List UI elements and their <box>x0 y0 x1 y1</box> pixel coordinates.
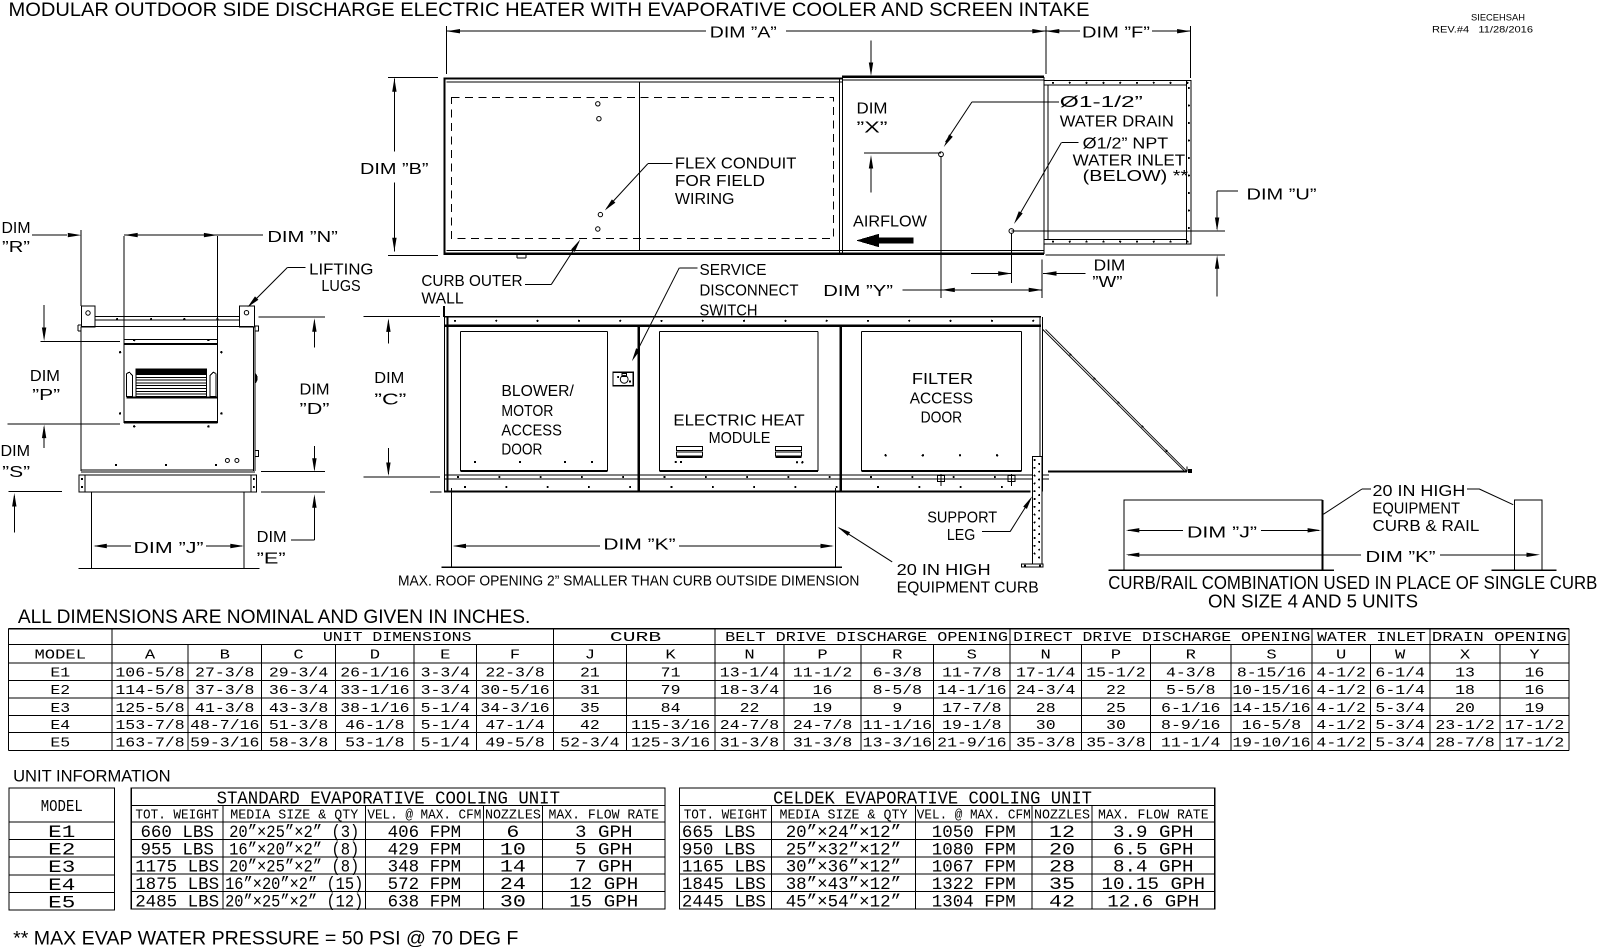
svg-text:FLEX CONDUIT: FLEX CONDUIT <box>675 156 797 173</box>
svg-text:41-3/8: 41-3/8 <box>195 701 254 717</box>
svg-text:20”×25”×2” (12): 20”×25”×2” (12) <box>225 893 363 913</box>
svg-text:13-3/16: 13-3/16 <box>863 735 932 751</box>
svg-text:16: 16 <box>1525 666 1545 682</box>
svg-text:DIM: DIM <box>1094 258 1126 275</box>
svg-text:5-3/4: 5-3/4 <box>1375 718 1425 734</box>
svg-text:18-3/4: 18-3/4 <box>720 683 779 699</box>
svg-text:35: 35 <box>580 701 600 717</box>
svg-text:19-10/16: 19-10/16 <box>1233 735 1311 751</box>
svg-text:E3: E3 <box>50 701 70 717</box>
svg-text:28-7/8: 28-7/8 <box>1435 735 1494 751</box>
svg-text:S: S <box>1266 648 1276 664</box>
svg-text:19: 19 <box>813 701 833 717</box>
svg-text:24-3/4: 24-3/4 <box>1016 683 1075 699</box>
svg-text:6-1/16: 6-1/16 <box>1161 701 1220 717</box>
svg-text:P: P <box>817 648 827 664</box>
svg-text:6-1/4: 6-1/4 <box>1375 683 1425 699</box>
svg-text:31-3/8: 31-3/8 <box>793 735 852 751</box>
svg-text:9: 9 <box>892 701 902 717</box>
svg-text:DIM ”J”: DIM ”J” <box>134 540 204 557</box>
svg-text:DIM: DIM <box>257 529 287 546</box>
svg-text:”X”: ”X” <box>857 120 888 137</box>
svg-text:Y: Y <box>1529 648 1540 664</box>
svg-text:22: 22 <box>740 701 760 717</box>
svg-text:30-5/16: 30-5/16 <box>480 683 549 699</box>
svg-text:DIM ”B”: DIM ”B” <box>360 161 429 178</box>
svg-text:52-3/4: 52-3/4 <box>560 735 619 751</box>
svg-text:2445 LBS: 2445 LBS <box>682 893 766 913</box>
svg-text:DIM: DIM <box>30 368 60 385</box>
svg-text:31-3/8: 31-3/8 <box>720 735 779 751</box>
svg-text:21: 21 <box>580 666 600 682</box>
svg-text:MODULAR OUTDOOR SIDE DISCHARGE: MODULAR OUTDOOR SIDE DISCHARGE ELECTRIC … <box>9 0 1090 21</box>
svg-text:35-3/8: 35-3/8 <box>1016 735 1075 751</box>
svg-text:12.6 GPH: 12.6 GPH <box>1107 893 1199 913</box>
svg-text:BLOWER/: BLOWER/ <box>501 383 574 400</box>
svg-text:53-1/8: 53-1/8 <box>345 735 404 751</box>
svg-text:** MAX EVAP WATER PRESSURE = 5: ** MAX EVAP WATER PRESSURE = 50 PSI @ 70… <box>13 929 518 947</box>
svg-text:31: 31 <box>580 683 600 699</box>
svg-text:DISCONNECT: DISCONNECT <box>700 282 800 299</box>
svg-text:DIM: DIM <box>857 101 888 118</box>
svg-text:R: R <box>892 648 903 664</box>
svg-text:DIM ”J”: DIM ”J” <box>1187 524 1257 541</box>
svg-text:TOT. WEIGHT: TOT. WEIGHT <box>135 808 219 824</box>
svg-text:163-7/8: 163-7/8 <box>115 735 184 751</box>
svg-text:VEL. @ MAX. CFM: VEL. @ MAX. CFM <box>917 808 1031 824</box>
svg-text:37-3/8: 37-3/8 <box>195 683 254 699</box>
svg-text:36-3/4: 36-3/4 <box>269 683 328 699</box>
svg-text:”C”: ”C” <box>374 392 406 409</box>
svg-text:22-3/8: 22-3/8 <box>485 666 544 682</box>
svg-text:U: U <box>1336 648 1346 664</box>
svg-text:NOZZLES: NOZZLES <box>485 808 541 824</box>
svg-text:MEDIA SIZE & QTY: MEDIA SIZE & QTY <box>779 808 908 824</box>
svg-text:S: S <box>967 648 977 664</box>
svg-text:24-7/8: 24-7/8 <box>720 718 779 734</box>
svg-text:FOR FIELD: FOR FIELD <box>675 173 765 190</box>
svg-text:49-5/8: 49-5/8 <box>485 735 544 751</box>
svg-text:30: 30 <box>1036 718 1056 734</box>
svg-text:17-7/8: 17-7/8 <box>942 701 1001 717</box>
svg-text:19: 19 <box>1525 701 1545 717</box>
svg-text:34-3/16: 34-3/16 <box>480 701 549 717</box>
svg-text:14-15/16: 14-15/16 <box>1233 701 1311 717</box>
svg-text:13-1/4: 13-1/4 <box>720 666 779 682</box>
svg-text:3-3/4: 3-3/4 <box>421 666 471 682</box>
svg-text:11-1/4: 11-1/4 <box>1161 735 1220 751</box>
svg-text:3-3/4: 3-3/4 <box>421 683 471 699</box>
svg-text:TOT. WEIGHT: TOT. WEIGHT <box>684 808 768 824</box>
svg-text:8-9/16: 8-9/16 <box>1161 718 1220 734</box>
svg-text:11-1/2: 11-1/2 <box>793 666 852 682</box>
svg-text:SUPPORT: SUPPORT <box>927 510 997 527</box>
svg-text:E: E <box>440 648 450 664</box>
svg-text:51-3/8: 51-3/8 <box>269 718 328 734</box>
svg-text:MOTOR: MOTOR <box>501 403 553 420</box>
svg-text:DIM: DIM <box>374 370 404 387</box>
svg-text:8-5/8: 8-5/8 <box>873 683 923 699</box>
svg-text:16: 16 <box>813 683 833 699</box>
svg-text:30: 30 <box>1106 718 1126 734</box>
svg-text:”W”: ”W” <box>1092 274 1122 291</box>
svg-text:48-7/16: 48-7/16 <box>190 718 259 734</box>
svg-text:23-1/2: 23-1/2 <box>1435 718 1494 734</box>
svg-text:UNIT DIMENSIONS: UNIT DIMENSIONS <box>323 630 472 646</box>
svg-text:CURB: CURB <box>610 630 661 646</box>
svg-text:E5: E5 <box>48 893 75 913</box>
svg-text:W: W <box>1395 648 1406 664</box>
svg-text:WATER DRAIN: WATER DRAIN <box>1060 114 1174 131</box>
svg-text:115-3/16: 115-3/16 <box>631 718 710 734</box>
svg-text:30: 30 <box>500 893 526 913</box>
svg-text:EQUIPMENT CURB: EQUIPMENT CURB <box>897 580 1039 597</box>
svg-text:DIM ”U”: DIM ”U” <box>1247 187 1317 204</box>
svg-text:J: J <box>585 648 595 664</box>
svg-text:”P”: ”P” <box>32 387 60 404</box>
svg-text:F: F <box>510 648 520 664</box>
svg-text:REV.#4 11/28/2016: REV.#4 11/28/2016 <box>1432 24 1533 35</box>
svg-text:4-1/2: 4-1/2 <box>1316 701 1366 717</box>
svg-text:5-1/4: 5-1/4 <box>421 718 471 734</box>
svg-text:N: N <box>744 648 754 664</box>
svg-text:106-5/8: 106-5/8 <box>115 666 184 682</box>
svg-text:WIRING: WIRING <box>675 191 735 208</box>
svg-text:D: D <box>370 648 380 664</box>
svg-text:FILTER: FILTER <box>912 371 973 388</box>
svg-text:ELECTRIC HEAT: ELECTRIC HEAT <box>673 413 805 430</box>
svg-text:Ø1-1/2”: Ø1-1/2” <box>1060 94 1143 111</box>
svg-text:MAX. FLOW RATE: MAX. FLOW RATE <box>1098 808 1209 824</box>
svg-text:25: 25 <box>1106 701 1126 717</box>
svg-text:SERVICE: SERVICE <box>700 262 767 279</box>
svg-text:DOOR: DOOR <box>921 410 963 427</box>
svg-text:5-1/4: 5-1/4 <box>421 735 471 751</box>
svg-text:4-1/2: 4-1/2 <box>1316 666 1366 682</box>
svg-text:EQUIPMENT: EQUIPMENT <box>1373 501 1461 518</box>
svg-text:8-15/16: 8-15/16 <box>1237 666 1306 682</box>
svg-text:VEL. @ MAX. CFM: VEL. @ MAX. CFM <box>367 808 481 824</box>
svg-text:LIFTING: LIFTING <box>309 262 373 279</box>
svg-text:A: A <box>145 648 156 664</box>
svg-text:LUGS: LUGS <box>321 278 360 295</box>
svg-text:26-1/16: 26-1/16 <box>340 666 409 682</box>
svg-text:1304 FPM: 1304 FPM <box>932 893 1016 913</box>
svg-text:4-1/2: 4-1/2 <box>1316 718 1366 734</box>
svg-text:35-3/8: 35-3/8 <box>1086 735 1145 751</box>
svg-text:DIM ”F”: DIM ”F” <box>1082 24 1150 41</box>
svg-text:DIM: DIM <box>300 382 330 399</box>
svg-text:27-3/8: 27-3/8 <box>195 666 254 682</box>
svg-text:6-1/4: 6-1/4 <box>1375 666 1425 682</box>
svg-text:79: 79 <box>661 683 681 699</box>
svg-text:638 FPM: 638 FPM <box>388 893 462 913</box>
svg-text:125-5/8: 125-5/8 <box>115 701 184 717</box>
svg-text:MEDIA SIZE & QTY: MEDIA SIZE & QTY <box>230 808 359 824</box>
svg-text:BELT DRIVE DISCHARGE OPENING: BELT DRIVE DISCHARGE OPENING <box>725 630 1008 646</box>
svg-text:DIRECT DRIVE DISCHARGE OPENING: DIRECT DRIVE DISCHARGE OPENING <box>1013 630 1310 646</box>
svg-text:DIM ”K”: DIM ”K” <box>603 537 675 554</box>
svg-text:47-1/4: 47-1/4 <box>485 718 544 734</box>
svg-text:WATER INLET: WATER INLET <box>1073 152 1186 169</box>
svg-text:58-3/8: 58-3/8 <box>269 735 328 751</box>
svg-text:42: 42 <box>580 718 600 734</box>
svg-text:E4: E4 <box>50 718 70 734</box>
svg-text:43-3/8: 43-3/8 <box>269 701 328 717</box>
svg-text:17-1/2: 17-1/2 <box>1505 735 1564 751</box>
svg-text:42: 42 <box>1049 893 1075 913</box>
svg-text:MODEL: MODEL <box>35 648 87 664</box>
svg-text:C: C <box>293 648 303 664</box>
svg-text:20 IN HIGH: 20 IN HIGH <box>1373 483 1466 500</box>
svg-text:CURB & RAIL: CURB & RAIL <box>1373 518 1480 535</box>
svg-text:84: 84 <box>661 701 681 717</box>
svg-text:45”×54”×12”: 45”×54”×12” <box>786 893 902 913</box>
svg-text:24-7/8: 24-7/8 <box>793 718 852 734</box>
svg-text:2485 LBS: 2485 LBS <box>135 893 219 913</box>
svg-text:MAX. FLOW RATE: MAX. FLOW RATE <box>548 808 659 824</box>
svg-text:CURB OUTER: CURB OUTER <box>421 273 522 290</box>
svg-text:153-7/8: 153-7/8 <box>115 718 184 734</box>
svg-text:10-15/16: 10-15/16 <box>1233 683 1311 699</box>
svg-text:5-5/8: 5-5/8 <box>1166 683 1216 699</box>
svg-text:LEG: LEG <box>947 527 975 544</box>
svg-text:P: P <box>1111 648 1121 664</box>
svg-text:ON SIZE 4 AND 5 UNITS: ON SIZE 4 AND 5 UNITS <box>1208 590 1418 611</box>
svg-text:114-5/8: 114-5/8 <box>115 683 184 699</box>
svg-text:DIM ”K”: DIM ”K” <box>1366 549 1436 566</box>
svg-text:DRAIN OPENING: DRAIN OPENING <box>1432 630 1567 646</box>
svg-text:N: N <box>1041 648 1051 664</box>
svg-text:SWITCH: SWITCH <box>700 303 758 320</box>
svg-text:E1: E1 <box>50 666 70 682</box>
svg-text:K: K <box>665 648 676 664</box>
svg-text:AIRFLOW: AIRFLOW <box>853 214 927 231</box>
svg-text:DIM: DIM <box>2 220 31 237</box>
svg-text:18: 18 <box>1455 683 1475 699</box>
svg-text:DIM ”Y”: DIM ”Y” <box>823 283 893 300</box>
svg-text:NOZZLES: NOZZLES <box>1034 808 1090 824</box>
svg-text:(BELOW) **: (BELOW) ** <box>1083 168 1188 185</box>
svg-text:X: X <box>1460 648 1471 664</box>
svg-text:CELDEK EVAPORATIVE COOLING UNI: CELDEK EVAPORATIVE COOLING UNIT <box>773 789 1092 809</box>
svg-text:STANDARD EVAPORATIVE COOLING U: STANDARD EVAPORATIVE COOLING UNIT <box>217 789 561 809</box>
svg-text:MODULE: MODULE <box>709 430 771 447</box>
svg-text:59-3/16: 59-3/16 <box>190 735 259 751</box>
svg-text:4-3/8: 4-3/8 <box>1166 666 1216 682</box>
svg-text:”E”: ”E” <box>257 551 286 568</box>
svg-text:11-7/8: 11-7/8 <box>942 666 1001 682</box>
svg-text:”R”: ”R” <box>2 239 30 256</box>
svg-text:MODEL: MODEL <box>41 798 83 817</box>
svg-text:20 IN HIGH: 20 IN HIGH <box>897 562 991 579</box>
svg-text:ACCESS: ACCESS <box>501 422 562 439</box>
svg-text:DIM ”A”: DIM ”A” <box>710 24 777 41</box>
svg-text:E5: E5 <box>50 735 70 751</box>
svg-text:Ø1/2” NPT: Ø1/2” NPT <box>1083 135 1169 152</box>
svg-text:WATER INLET: WATER INLET <box>1317 630 1426 646</box>
svg-text:33-1/16: 33-1/16 <box>340 683 409 699</box>
svg-text:SIECEHSAH: SIECEHSAH <box>1471 12 1525 23</box>
svg-text:13: 13 <box>1455 666 1475 682</box>
svg-text:29-3/4: 29-3/4 <box>269 666 328 682</box>
svg-text:5-3/4: 5-3/4 <box>1375 735 1425 751</box>
svg-text:DIM: DIM <box>1 443 30 460</box>
svg-text:17-1/2: 17-1/2 <box>1505 718 1564 734</box>
svg-text:E2: E2 <box>50 683 70 699</box>
svg-text:19-1/8: 19-1/8 <box>942 718 1001 734</box>
svg-text:ACCESS: ACCESS <box>910 391 973 408</box>
svg-text:11-1/16: 11-1/16 <box>863 718 932 734</box>
svg-text:16-5/8: 16-5/8 <box>1242 718 1301 734</box>
svg-text:”D”: ”D” <box>300 401 330 418</box>
svg-text:DIM ”N”: DIM ”N” <box>267 229 338 246</box>
svg-text:17-1/4: 17-1/4 <box>1016 666 1075 682</box>
svg-text:28: 28 <box>1036 701 1056 717</box>
svg-text:71: 71 <box>661 666 681 682</box>
svg-text:15-1/2: 15-1/2 <box>1086 666 1145 682</box>
svg-text:15 GPH: 15 GPH <box>569 893 638 913</box>
svg-text:22: 22 <box>1106 683 1126 699</box>
svg-text:R: R <box>1186 648 1197 664</box>
svg-text:21-9/16: 21-9/16 <box>937 735 1006 751</box>
svg-text:MAX. ROOF OPENING 2” SMALLER T: MAX. ROOF OPENING 2” SMALLER THAN CURB O… <box>398 574 859 590</box>
svg-text:14-1/16: 14-1/16 <box>937 683 1006 699</box>
svg-text:46-1/8: 46-1/8 <box>345 718 404 734</box>
svg-text:5-1/4: 5-1/4 <box>421 701 471 717</box>
svg-text:”S”: ”S” <box>2 464 30 481</box>
svg-text:38-1/16: 38-1/16 <box>340 701 409 717</box>
svg-text:16: 16 <box>1525 683 1545 699</box>
svg-text:ALL DIMENSIONS ARE NOMINAL AND: ALL DIMENSIONS ARE NOMINAL AND GIVEN IN … <box>18 607 531 628</box>
svg-text:125-3/16: 125-3/16 <box>631 735 710 751</box>
svg-text:UNIT INFORMATION: UNIT INFORMATION <box>13 767 171 786</box>
svg-text:4-1/2: 4-1/2 <box>1316 735 1366 751</box>
svg-text:20: 20 <box>1455 701 1475 717</box>
svg-text:B: B <box>220 648 230 664</box>
svg-text:4-1/2: 4-1/2 <box>1316 683 1366 699</box>
svg-text:DOOR: DOOR <box>501 442 542 459</box>
svg-text:WALL: WALL <box>421 290 464 307</box>
svg-text:6-3/8: 6-3/8 <box>873 666 923 682</box>
svg-text:5-3/4: 5-3/4 <box>1375 701 1425 717</box>
